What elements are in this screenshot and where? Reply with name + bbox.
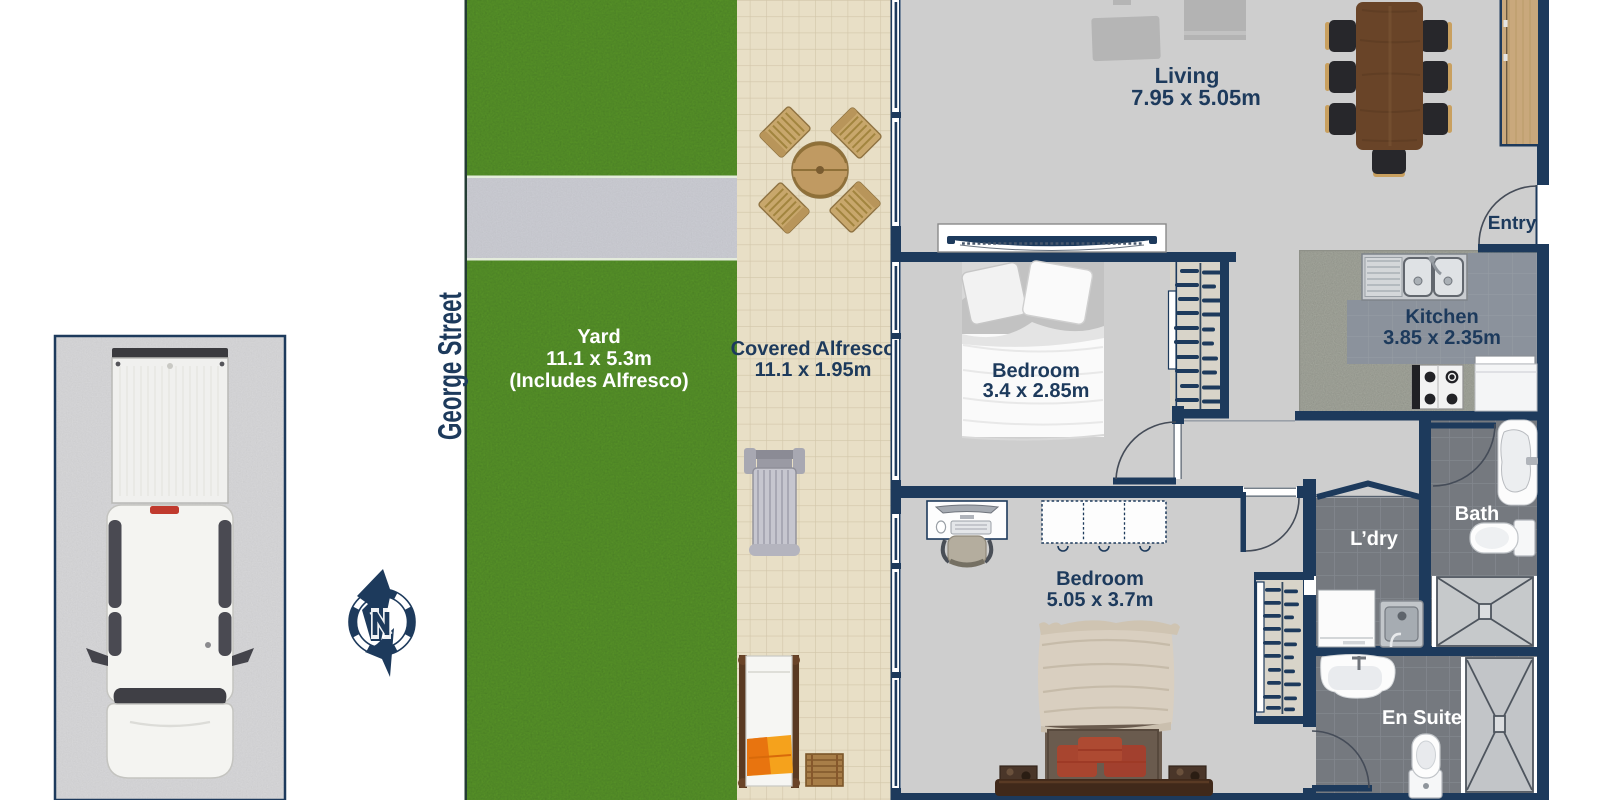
svg-text:11.1 x 5.3m: 11.1 x 5.3m: [546, 348, 652, 370]
svg-text:3.85 x 2.35m: 3.85 x 2.35m: [1383, 327, 1501, 349]
svg-text:7.95 x 5.05m: 7.95 x 5.05m: [1131, 85, 1261, 110]
svg-text:Yard: Yard: [577, 326, 620, 348]
svg-text:L’dry: L’dry: [1350, 528, 1399, 550]
svg-text:Bedroom: Bedroom: [992, 360, 1080, 382]
svg-text:(Includes Alfresco): (Includes Alfresco): [509, 370, 688, 392]
svg-text:Covered Alfresco: Covered Alfresco: [731, 338, 896, 360]
svg-text:5.05 x 3.7m: 5.05 x 3.7m: [1047, 589, 1154, 611]
svg-text:En Suite: En Suite: [1382, 707, 1462, 729]
svg-text:Bedroom: Bedroom: [1056, 568, 1144, 590]
svg-text:3.4 x 2.85m: 3.4 x 2.85m: [983, 380, 1090, 402]
svg-text:Bath: Bath: [1455, 503, 1499, 525]
svg-text:Kitchen: Kitchen: [1405, 306, 1478, 328]
svg-text:Entry: Entry: [1488, 213, 1537, 234]
svg-text:11.1 x 1.95m: 11.1 x 1.95m: [755, 359, 872, 381]
svg-text:George Street: George Street: [431, 292, 468, 440]
